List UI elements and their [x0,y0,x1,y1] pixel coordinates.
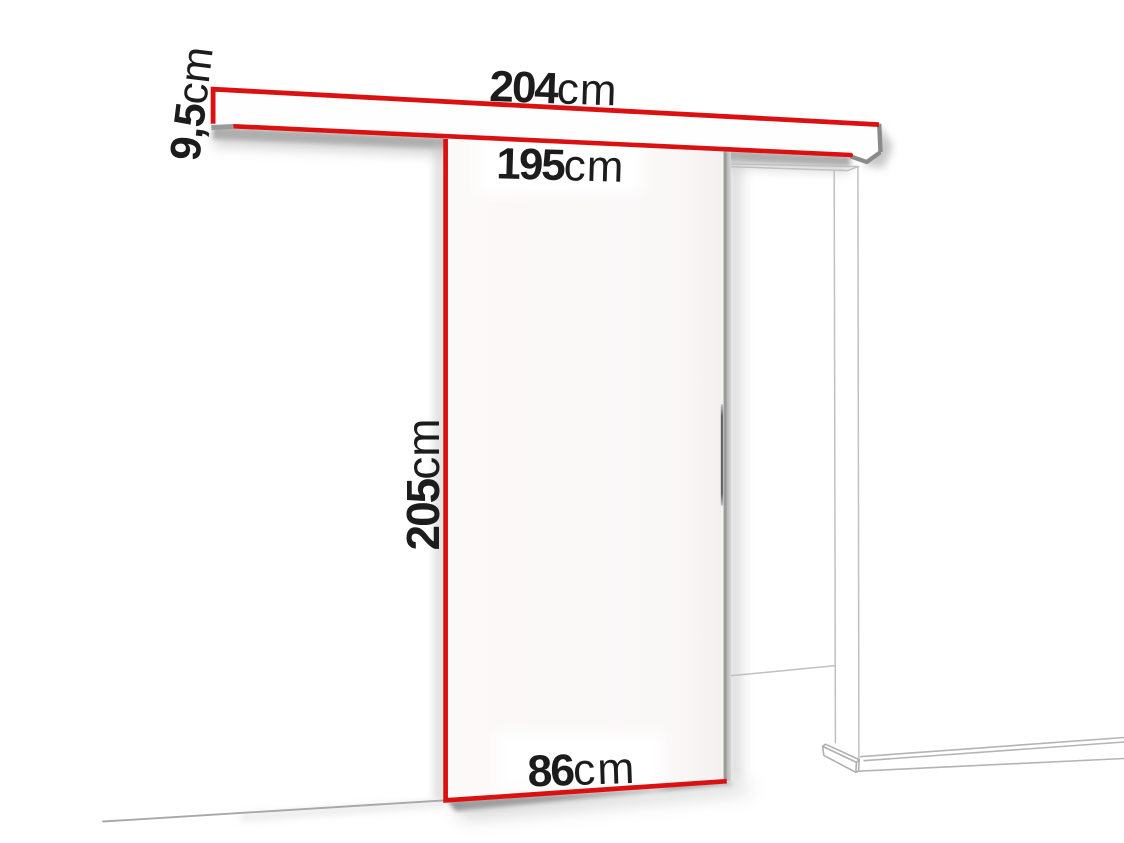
svg-text:205cm: 205cm [397,418,449,550]
svg-text:204cm: 204cm [489,62,619,115]
svg-text:86cm: 86cm [527,744,637,797]
svg-text:195cm: 195cm [496,139,625,192]
